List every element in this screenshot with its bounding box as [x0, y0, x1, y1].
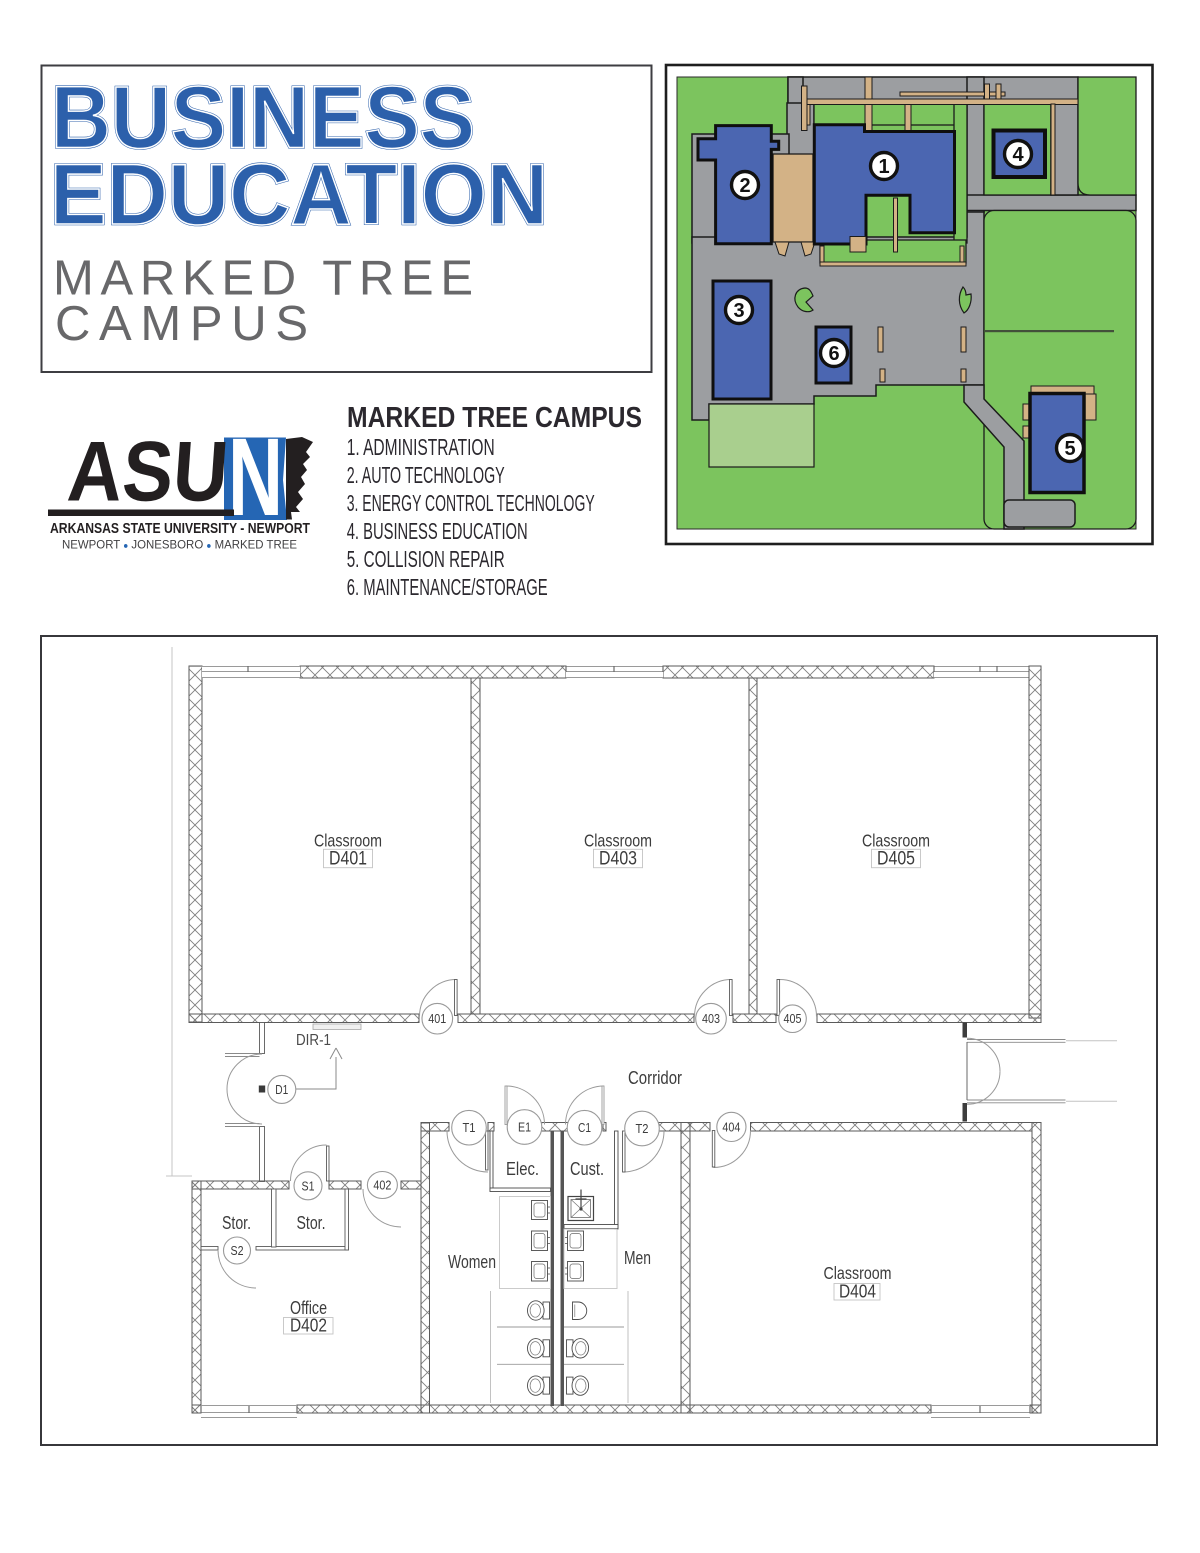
svg-text:T2: T2: [636, 1121, 649, 1136]
svg-text:5: 5: [1064, 438, 1075, 460]
svg-text:D1: D1: [275, 1082, 288, 1097]
svg-text:5. COLLISION REPAIR: 5. COLLISION REPAIR: [347, 546, 505, 572]
svg-text:Stor.: Stor.: [297, 1213, 326, 1233]
svg-text:6: 6: [828, 343, 839, 365]
svg-text:2: 2: [739, 175, 750, 197]
svg-text:Corridor: Corridor: [628, 1067, 682, 1088]
svg-text:401: 401: [428, 1011, 446, 1026]
svg-text:Classroom: Classroom: [824, 1263, 892, 1283]
svg-text:Stor.: Stor.: [222, 1213, 251, 1233]
svg-text:4: 4: [1012, 144, 1024, 166]
svg-text:D403: D403: [599, 849, 637, 870]
svg-text:S1: S1: [302, 1178, 315, 1193]
svg-text:4. BUSINESS EDUCATION: 4. BUSINESS EDUCATION: [347, 518, 528, 544]
svg-text:Classroom: Classroom: [584, 831, 652, 851]
svg-text:ARKANSAS STATE UNIVERSITY - NE: ARKANSAS STATE UNIVERSITY - NEWPORT: [50, 521, 310, 537]
svg-text:6. MAINTENANCE/STORAGE: 6. MAINTENANCE/STORAGE: [347, 574, 548, 600]
svg-text:D404: D404: [839, 1282, 876, 1302]
svg-text:MARKED TREE CAMPUS: MARKED TREE CAMPUS: [347, 402, 642, 434]
svg-text:Women: Women: [448, 1251, 496, 1272]
svg-text:Classroom: Classroom: [314, 831, 382, 851]
svg-text:405: 405: [784, 1011, 802, 1026]
svg-text:Men: Men: [624, 1247, 651, 1268]
svg-text:DIR-1: DIR-1: [296, 1032, 331, 1049]
svg-text:Cust.: Cust.: [570, 1158, 604, 1179]
svg-text:3. ENERGY CONTROL TECHNOLOGY: 3. ENERGY CONTROL TECHNOLOGY: [347, 490, 595, 516]
svg-text:S2: S2: [231, 1243, 244, 1258]
svg-text:E1: E1: [518, 1120, 531, 1135]
svg-text:1: 1: [878, 156, 889, 178]
svg-text:Elec.: Elec.: [506, 1158, 539, 1179]
svg-text:403: 403: [702, 1011, 720, 1026]
svg-text:Classroom: Classroom: [862, 831, 930, 851]
svg-text:NEWPORT ● JONESBORO ● MARKED T: NEWPORT ● JONESBORO ● MARKED TREE: [62, 538, 297, 552]
svg-text:1. ADMINISTRATION: 1. ADMINISTRATION: [347, 434, 495, 460]
svg-text:3: 3: [733, 300, 744, 322]
svg-text:C1: C1: [578, 1120, 591, 1135]
svg-text:D405: D405: [877, 849, 915, 870]
svg-text:T1: T1: [463, 1120, 476, 1135]
svg-text:ASU: ASU: [65, 425, 232, 519]
svg-text:D402: D402: [290, 1316, 327, 1336]
svg-text:402: 402: [373, 1178, 391, 1193]
svg-text:404: 404: [722, 1119, 740, 1134]
svg-text:D401: D401: [329, 849, 367, 870]
svg-text:2. AUTO TECHNOLOGY: 2. AUTO TECHNOLOGY: [347, 462, 505, 488]
svg-text:EDUCATION: EDUCATION: [50, 147, 548, 243]
